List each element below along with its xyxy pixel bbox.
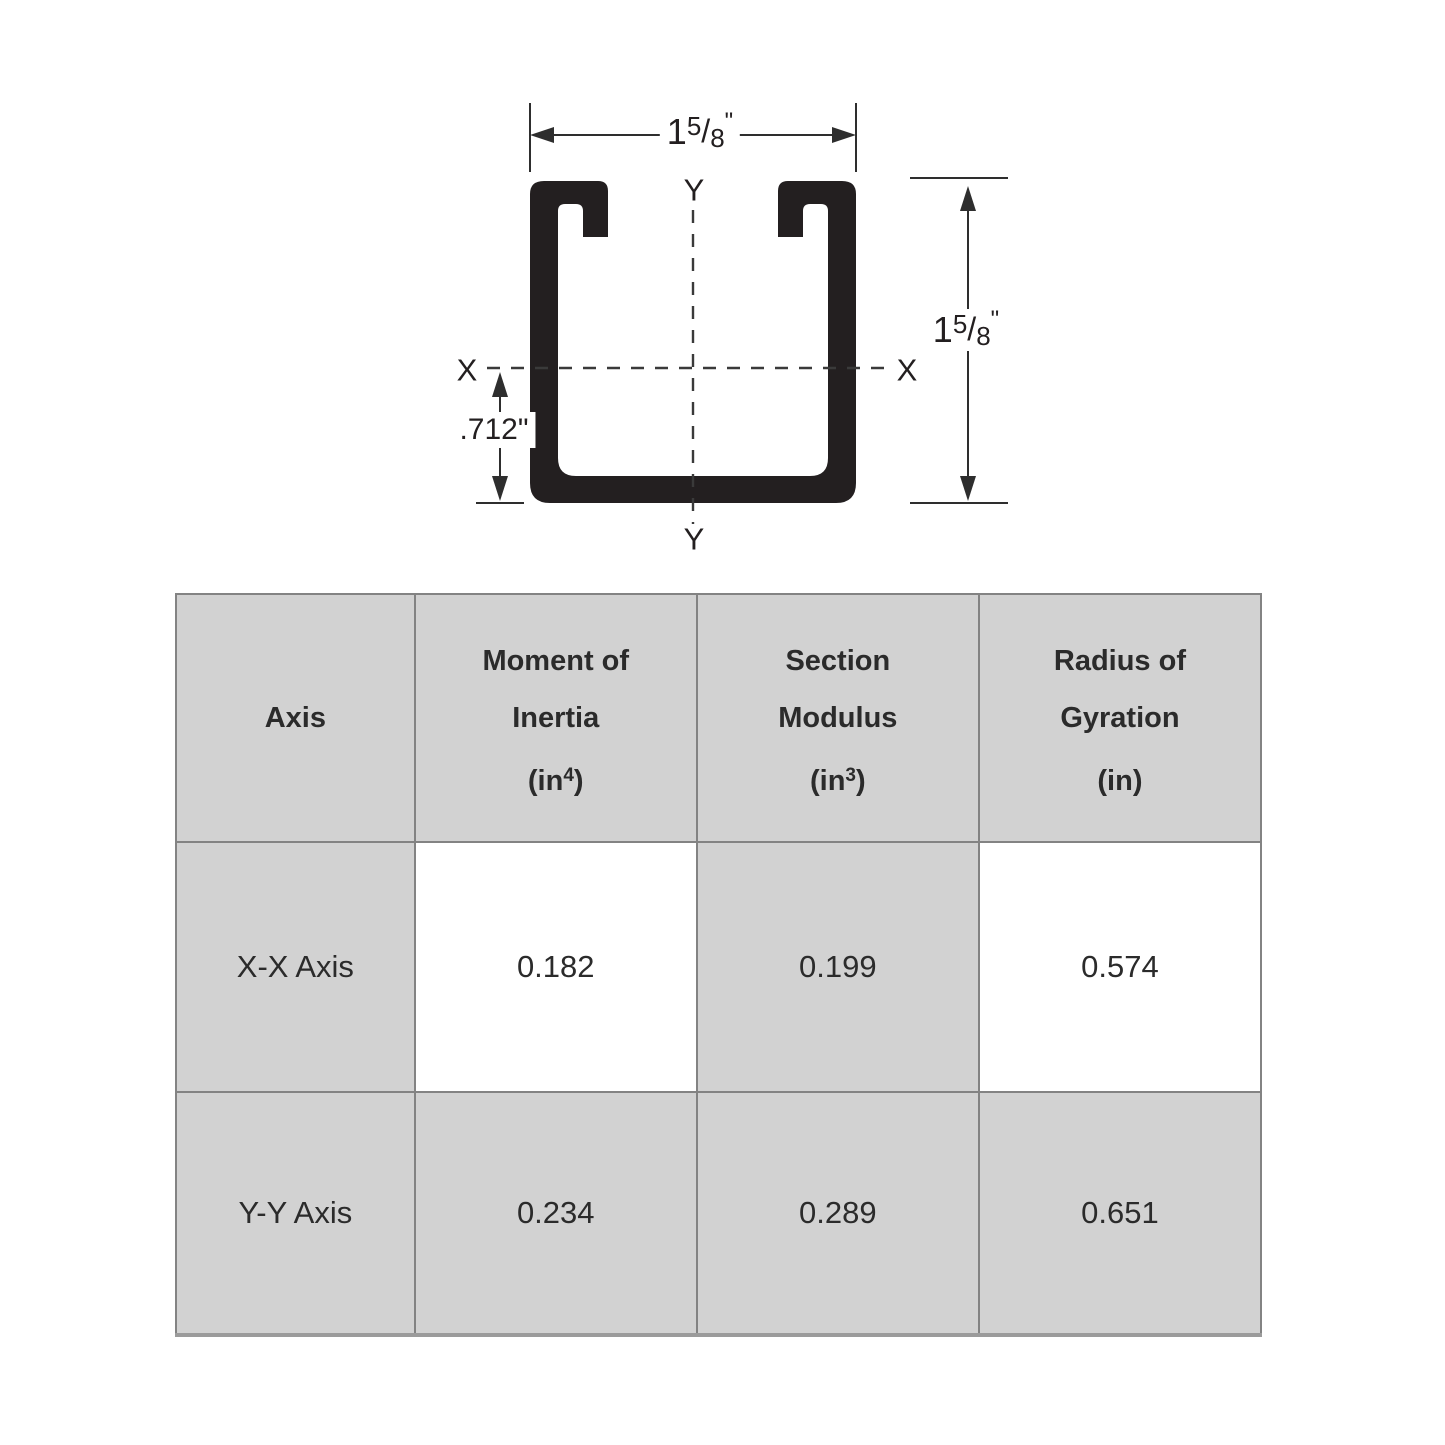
cell-xx-radius-of-gyration: 0.574: [979, 842, 1261, 1091]
unit-open: (in: [1097, 765, 1132, 797]
dim-numerator: 5: [953, 309, 967, 339]
table-row-xx-axis: X-X Axis 0.182 0.199 0.574: [176, 842, 1261, 1091]
header-line: Modulus: [698, 690, 978, 747]
cell-xx-axis-label: X-X Axis: [176, 842, 415, 1091]
cell-yy-moment-of-inertia: 0.234: [415, 1092, 697, 1335]
strut-channel-diagram: 15/8" 15/8" .712" X X Y Y: [0, 0, 1445, 590]
y-axis-label-top: Y: [684, 175, 705, 206]
dim-denominator: 8: [710, 123, 724, 153]
table-row-yy-axis: Y-Y Axis 0.234 0.289 0.651: [176, 1092, 1261, 1335]
cell-xx-moment-of-inertia: 0.182: [415, 842, 697, 1091]
height-dimension-label: 15/8": [926, 309, 1006, 351]
dim-denominator: 8: [976, 321, 990, 351]
dim-inch-mark: ": [725, 108, 734, 135]
arrowhead-down: [960, 476, 976, 501]
cell-yy-radius-of-gyration: 0.651: [979, 1092, 1261, 1335]
section-properties-table: Axis Moment of Inertia (in4) Section Mod…: [175, 593, 1262, 1337]
unit-superscript: 4: [563, 765, 574, 786]
unit-close: ): [856, 765, 866, 797]
x-axis-label-right: X: [897, 355, 918, 386]
dim-whole: 1: [667, 111, 687, 152]
header-radius-of-gyration: Radius of Gyration (in): [979, 594, 1261, 842]
header-line: Section: [698, 633, 978, 690]
y-axis-label-bottom: Y: [684, 524, 705, 555]
header-line: Inertia: [416, 690, 696, 747]
x-axis-label-left: X: [457, 355, 478, 386]
cell-yy-section-modulus: 0.289: [697, 1092, 979, 1335]
arrowhead-up: [960, 186, 976, 211]
unit-open: (in: [528, 765, 563, 797]
centroid-offset-label: .712": [452, 412, 535, 448]
header-axis-label: Axis: [177, 690, 414, 747]
header-unit: (in3): [698, 747, 978, 804]
header-section-modulus: Section Modulus (in3): [697, 594, 979, 842]
arrowhead-left: [530, 127, 554, 143]
arrowhead-down: [492, 476, 508, 501]
dim-inch-mark: ": [991, 306, 1000, 333]
header-line: Gyration: [980, 690, 1260, 747]
dim-whole: 1: [933, 309, 953, 350]
header-row: Axis Moment of Inertia (in4) Section Mod…: [176, 594, 1261, 842]
header-axis: Axis: [176, 594, 415, 842]
header-unit: (in4): [416, 747, 696, 804]
channel-cross-section-drawing: [0, 0, 1445, 590]
header-moment-of-inertia: Moment of Inertia (in4): [415, 594, 697, 842]
unit-superscript: 3: [845, 765, 856, 786]
unit-close: ): [1133, 765, 1143, 797]
page: 15/8" 15/8" .712" X X Y Y Axis Moment of…: [0, 0, 1445, 1445]
cell-xx-section-modulus: 0.199: [697, 842, 979, 1091]
unit-open: (in: [810, 765, 845, 797]
width-dimension-label: 15/8": [660, 111, 740, 153]
arrowhead-up: [492, 372, 508, 397]
header-unit: (in): [980, 747, 1260, 804]
dim-numerator: 5: [687, 111, 701, 141]
cell-yy-axis-label: Y-Y Axis: [176, 1092, 415, 1335]
unit-close: ): [574, 765, 584, 797]
header-line: Radius of: [980, 633, 1260, 690]
arrowhead-right: [832, 127, 856, 143]
header-line: Moment of: [416, 633, 696, 690]
